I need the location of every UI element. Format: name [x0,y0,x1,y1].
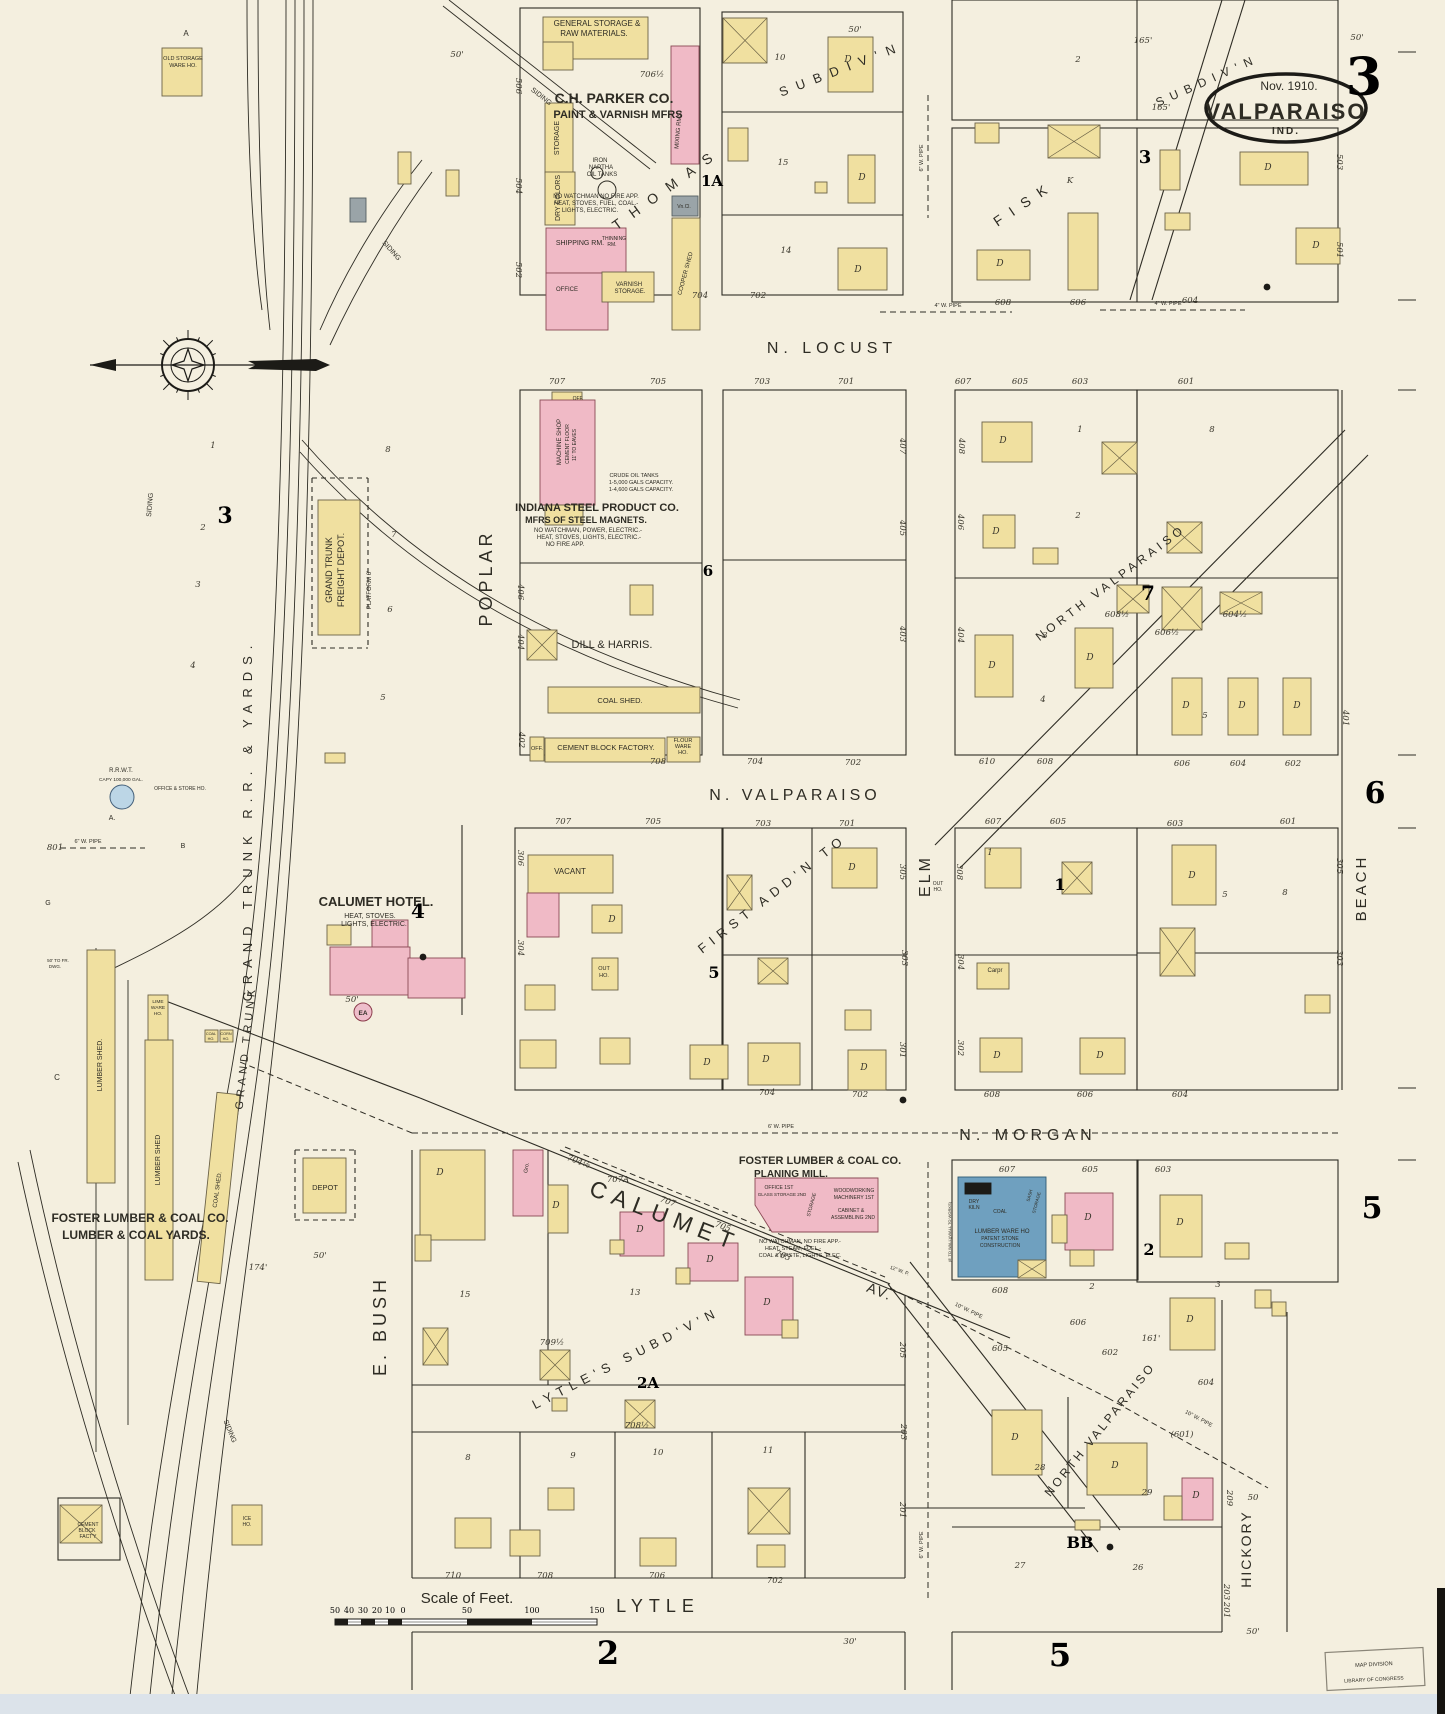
map-label: 6' W. PIPE [768,1124,794,1130]
street-number: 50' [345,995,358,1005]
street-number: K [1066,176,1074,186]
building-footprint [398,152,411,184]
building-footprint [510,1530,540,1556]
map-label: MFRS OF STEEL MAGNETS. [525,515,647,525]
block-number: BB [1066,1533,1093,1552]
building-footprint [415,1235,431,1261]
map-label: GLASS STORAGE 2ND [758,1192,807,1197]
street-number: 5 [1202,711,1207,721]
building-footprint [327,925,351,945]
building-footprint [1068,213,1098,290]
scale-number: 100 [524,1606,539,1615]
street-number: 502 [513,262,523,278]
street-number: 29 [1141,1488,1153,1498]
street-number: 2 [199,523,205,533]
street-number: 3 [1215,1280,1220,1290]
map-label: LIME [152,999,163,1005]
block-number: 5 [1362,1191,1383,1226]
street-number: 607 [999,1165,1016,1175]
map-label: B [181,843,186,850]
building-footprint [1075,628,1113,688]
scan-corner-bar [1437,1588,1445,1714]
map-label: 6" W. PIPE [74,839,101,845]
street-name: HICKORY [1238,1510,1254,1588]
building-footprint [1160,150,1180,190]
map-label: PAINT & VARNISH MFRS [553,109,682,121]
map-label: FACT'Y [79,1534,97,1540]
street-name: N. MORGAN [959,1127,1096,1144]
street-name: E. BUSH [370,1276,390,1376]
map-label: VACANT [554,867,586,876]
map-label: HO. [223,1037,230,1041]
map-label: CAPY 100,000 GAL. [99,777,143,783]
street-number: 607 [955,377,972,387]
dwelling-mark: D [607,915,615,925]
dwelling-mark: D [761,1055,769,1065]
map-label: A. [109,815,116,822]
street-number: 606 [1077,1090,1094,1100]
map-label: LIGHTS, ELECTRIC. [341,921,407,928]
building-footprint [548,1488,574,1510]
map-label: GENERAL STORAGE & [554,19,641,28]
map-label: RAW MATERIALS. [560,29,628,38]
map-label: LUMBER & COAL YARDS. [62,1228,210,1242]
map-label: MACHINE SHOP [557,419,563,465]
dwelling-mark: D [1085,653,1093,663]
street-number: 8 [465,1453,471,1463]
street-number: 15 [778,158,789,168]
street-number: 28 [1034,1463,1046,1473]
street-number: 201 [1221,1601,1231,1618]
street-number: 706½ [640,69,664,80]
street-number: 10 [775,53,786,63]
map-label: A [183,29,189,38]
dwelling-mark: D [992,1051,1000,1061]
dwelling-mark: D [1311,241,1319,251]
street-number: 604 [1230,759,1246,769]
map-label: R.R.W.T. [109,768,133,774]
street-number: 6 [387,605,393,615]
street-number: 707A [607,1175,629,1185]
building-footprint [420,1150,485,1240]
street-number: 1 [210,441,215,451]
street-number: 701 [839,819,855,829]
street-number: 305 [1334,858,1344,874]
building-footprint [546,228,626,273]
dwelling-mark: D [702,1058,710,1068]
map-label: NO WATCHMAN, POWER, ELECTRIC.- [534,528,642,534]
map-label: HO. [208,1037,215,1041]
map-label: HO. [934,887,943,893]
map-label: WOODWORKING [834,1188,875,1194]
street-number: 602 [1102,1348,1118,1358]
map-label: VARNISH [616,282,642,288]
map-label: STORAGE [554,121,561,155]
dwelling-mark: D [551,1201,559,1211]
street-number: 708½ [625,1420,649,1431]
street-number: 303 [1334,950,1344,966]
map-label: Nov. 1910. [1260,79,1317,93]
map-label: DEPOT [312,1183,338,1192]
building-footprint [600,1038,630,1064]
street-number: 506 [513,78,523,95]
building-footprint [838,248,887,290]
map-label: VALPARAISO [1206,99,1367,124]
map-label: COAL [993,1209,1007,1215]
street-number: 406 [515,583,525,601]
street-number: 305 [897,864,907,880]
building-footprint [546,273,608,330]
map-label: 1-5,000 GALS CAPACITY. [609,480,674,486]
map-label: 4" W. PIPE [934,303,961,309]
street-number: 709½ [540,1337,564,1348]
map-label: HO. [599,973,609,979]
map-label: IRON [593,158,608,164]
subdivision-name: GRAND TRUNK R.R. & YARDS. [240,639,255,1002]
map-label: ASSEMBLING 2ND [831,1215,875,1221]
street-number: 405 [897,519,907,536]
street-number: 304 [955,954,965,970]
building-footprint [1240,152,1308,185]
street-number: 703 [754,377,770,387]
building-footprint [980,1038,1022,1072]
street-number: 705 [645,817,661,827]
street-number: 9 [570,1451,576,1461]
street-number: 205 [897,1341,907,1358]
block-number: 3 [217,503,232,529]
building-footprint [455,1518,491,1548]
railroad-water-tank [110,785,134,809]
street-name: N. LOCUST [767,340,897,357]
street-number: 503 [1334,154,1344,170]
map-label: LUMBER SHED [155,1135,162,1186]
dwelling-mark: D [1095,1051,1103,1061]
map-label: COAL SHED. [597,696,642,705]
map-label: C [54,1073,60,1082]
map-label: FREIGHT DEPOT. [336,533,346,607]
street-number: 165' [1152,103,1171,113]
street-number: 403 [897,625,907,642]
block-number: 5 [708,963,719,982]
building-footprint [1272,1302,1286,1316]
building-footprint [965,1183,991,1194]
map-label: OFFICE & STORE HO. [154,786,206,792]
map-label: CEMENT FLOOR [565,424,571,464]
street-number: 3 [1042,631,1047,641]
street-number: 7 [391,530,397,540]
dwelling-mark: D [859,1063,867,1073]
street-number: 404 [955,626,965,643]
street-number: 11 [763,1446,774,1456]
street-number: 603 [1072,377,1088,387]
street-number: 504 [513,178,523,194]
dwelling-mark: D [998,436,1006,446]
map-label: HO. [154,1011,163,1017]
street-name: BEACH [1353,855,1370,922]
building-footprint [610,1240,624,1254]
dwelling-mark: D [1292,701,1300,711]
street-number: 1 [1077,425,1082,435]
street-number: 702 [852,1090,868,1100]
street-number: 303 [899,950,909,966]
scale-number: 0 [400,1606,405,1615]
street-number: 601 [1280,817,1296,827]
building-footprint [977,963,1009,989]
building-footprint [1164,1496,1182,1520]
street-number: 50' [313,1251,326,1261]
scale-number: 150 [589,1606,604,1615]
map-label: COAL [206,1032,216,1036]
sanborn-map-sheet: 35040302010050100150N. LOCUSTN. VALPARAI… [0,0,1445,1714]
street-number: 707 [555,817,572,827]
map-label: LUMBER WARE HO [974,1229,1029,1235]
street-number: 50' [848,25,861,35]
map-label: CABINET & [838,1208,865,1214]
street-number: 201 [897,1501,907,1518]
street-number: 604 [1182,296,1198,306]
street-number: 407 [897,437,907,455]
map-label: 50' TO FR. [47,958,69,963]
street-number: 501 [1334,242,1344,258]
street-number: 606 [1070,298,1087,308]
dwelling-mark: D [1175,1218,1183,1228]
hydrant-dot [900,1097,907,1104]
building-footprint [975,123,999,143]
hydrant-dot [1264,284,1271,291]
scale-number: 40 [344,1606,354,1615]
street-number: 708 [537,1571,554,1581]
map-label: DILL & HARRIS. [572,639,653,651]
street-number: 165' [1134,36,1153,46]
street-name: ELM [917,855,934,897]
street-number: 606 [1174,759,1191,769]
building-footprint [446,170,459,196]
street-number: 304 [515,940,525,956]
dwelling-mark: D [847,863,855,873]
map-label: 6" W. PIPE [919,144,925,171]
map-label: GRAND TRUNK [324,537,334,603]
dwelling-mark: D [987,661,995,671]
map-label: COAL & WASTE, LIGHTS, ELEC. [759,1253,842,1259]
street-number: 705 [650,377,666,387]
street-number: 2 [1074,511,1080,521]
building-footprint [592,905,622,933]
street-number: 703 [755,819,771,829]
map-label: (8' TO WALL)(WALL TO WORKS) [947,1201,952,1262]
street-number: 50' [1246,1627,1259,1637]
street-number: (601) [1171,1429,1194,1440]
building-footprint [1255,1290,1271,1308]
scale-number: 50 [330,1606,340,1615]
street-number: 607 [985,817,1002,827]
building-footprint [1165,213,1190,230]
map-label: CEMENT BLOCK FACTORY. [557,743,654,752]
building-footprint [676,1268,690,1284]
street-number: 26 [1132,1563,1144,1573]
building-footprint [527,893,559,937]
street-number: 408 [956,437,966,455]
building-footprint [630,585,653,615]
dwelling-mark: D [1010,1433,1018,1443]
hydrant-dot [420,954,427,961]
map-label: Vn.Cl. [677,204,691,210]
street-number: 30' [843,1637,856,1647]
scan-edge-strip [0,1694,1445,1714]
map-label: HEAT, STOVES, FUEL, COAL.- [554,201,638,207]
street-name: N. VALPARAISO [709,787,880,804]
street-number: 708 [650,757,667,767]
scale-number: 50 [462,1606,472,1615]
map-label: OFF. [531,746,543,752]
street-number: 608 [1037,757,1054,767]
street-number: 601 [1178,377,1194,387]
map-label: MACHINERY 1ST [834,1195,874,1201]
street-number: 608 [995,298,1012,308]
building-footprint [325,753,345,763]
street-number: 301 [897,1042,907,1058]
street-number: 13 [630,1288,641,1298]
hydrant-dot [1107,1544,1114,1551]
street-number: 704 [747,757,763,767]
dwelling-mark: D [762,1298,770,1308]
block-number: 5 [1049,1636,1071,1674]
street-number: 306 [515,850,525,867]
map-label: FOSTER LUMBER & COAL CO. [739,1155,901,1167]
map-label: C.H. PARKER CO. [555,90,674,106]
map-label: OUT [598,966,610,972]
scale-number: 10 [385,1606,395,1615]
map-label: LIGHTS, ELECTRIC. [562,208,619,214]
street-number: 2 [1074,55,1080,65]
map-label: NO FIRE APP. [546,542,585,548]
map-label: NO WATCHMAN NO FIRE APP. [553,194,639,200]
building-footprint [543,42,573,70]
street-number: 604 [1198,1378,1214,1388]
street-number: 608 [984,1090,1001,1100]
street-number: 603 [1155,1165,1171,1175]
street-number: 610 [979,757,996,767]
street-number: 2 [1088,1282,1094,1292]
street-number: 203 [898,1423,908,1440]
street-number: 8 [385,445,391,455]
map-label: DWG. [49,964,61,969]
street-number: 710 [445,1571,462,1581]
street-number: 401 [1340,709,1350,726]
block-number: 2 [1143,1240,1154,1259]
map-label: Scale of Feet. [421,1590,514,1607]
dwelling-mark: D [1185,1315,1193,1325]
dwelling-mark: D [843,55,851,65]
block-number: 6 [1365,776,1386,811]
street-number: 302 [955,1040,965,1056]
street-number: 605 [992,1344,1008,1354]
map-label: CRUDE OIL TANKS [609,473,658,479]
building-footprint [520,1040,556,1068]
street-name: LYTLE [616,1596,700,1616]
street-number: 8 [1282,888,1288,898]
map-label: RM. [607,242,616,248]
street-number: 308 [954,864,964,881]
building-footprint [513,1150,543,1216]
street-number: 14 [781,246,792,256]
street-number: 606 [1070,1318,1087,1328]
map-label: HEAT, STOVES, LIGHTS, ELECTRIC.- [537,535,641,541]
map-label: HEAT, STEAM, FUEL.- [765,1246,821,1252]
map-label: SHIPPING RM. [556,240,604,247]
map-label: KILN [968,1205,980,1211]
street-number: 209 [1224,1489,1234,1507]
street-number: 50 [1248,1493,1259,1503]
map-label: LUMBER SHED. [97,1039,104,1092]
street-number: 8 [1209,425,1215,435]
map-label: IND. [1272,126,1300,137]
street-number: 706 [649,1571,666,1581]
dwelling-mark: D [1263,163,1271,173]
building-footprint [982,422,1032,462]
street-number: 3 [195,580,200,590]
map-label: OIL TANKS [587,172,618,178]
building-footprint [728,128,748,161]
map-label: HEAT, STOVES. [344,913,396,920]
street-number: 161' [1142,1334,1161,1344]
street-number: 704 [759,1088,775,1098]
scale-number: 20 [372,1606,382,1615]
street-number: 404 [515,633,525,650]
map-label: NAPTHA [589,165,613,171]
street-number: 801 [47,843,63,853]
map-label: WARE [151,1005,165,1011]
street-number: 604½ [1223,609,1247,620]
dwelling-mark: D [1191,1491,1199,1501]
sanborn-map-canvas: 35040302010050100150N. LOCUSTN. VALPARAI… [0,0,1445,1714]
street-number: 702 [845,758,861,768]
street-number: 50' [450,50,463,60]
street-number: 15 [460,1290,471,1300]
street-number: 606½ [1155,627,1179,638]
block-number: 2A [637,1374,659,1392]
building-footprint [1033,548,1058,564]
street-number: 608½ [1105,609,1129,620]
block-number: 3 [1139,147,1152,168]
building-footprint [408,958,465,998]
dwelling-mark: D [857,173,865,183]
block-number: 7 [1141,581,1155,605]
scale-number: 30 [358,1606,368,1615]
map-label: OFFICE [556,287,578,293]
street-number: 406 [955,513,965,531]
map-label: Carpr [987,968,1002,974]
street-number: 702 [767,1576,783,1586]
building-footprint [1305,995,1330,1013]
street-name: POPLAR [476,529,496,626]
building-footprint [525,985,555,1010]
street-number: 10 [653,1448,664,1458]
map-label: 11' TO EAVES [572,428,578,461]
dwelling-mark: D [435,1168,443,1178]
dwelling-mark: D [1237,701,1245,711]
street-number: 605 [1012,377,1028,387]
map-label: PLANING MILL. [754,1169,828,1180]
street-number: 707 [549,377,566,387]
map-label: HO. [243,1522,252,1528]
building-footprint [757,1545,785,1567]
compass-pointer [248,359,330,371]
map-label: INDIANA STEEL PRODUCT CO. [515,502,679,514]
map-label: 1-4,600 GALS CAPACITY. [609,487,674,493]
dwelling-mark: D [853,265,861,275]
map-label: NO WATCHMAN, NO FIRE APP.- [759,1239,841,1245]
map-label: PLATFORM 6' [367,571,373,609]
